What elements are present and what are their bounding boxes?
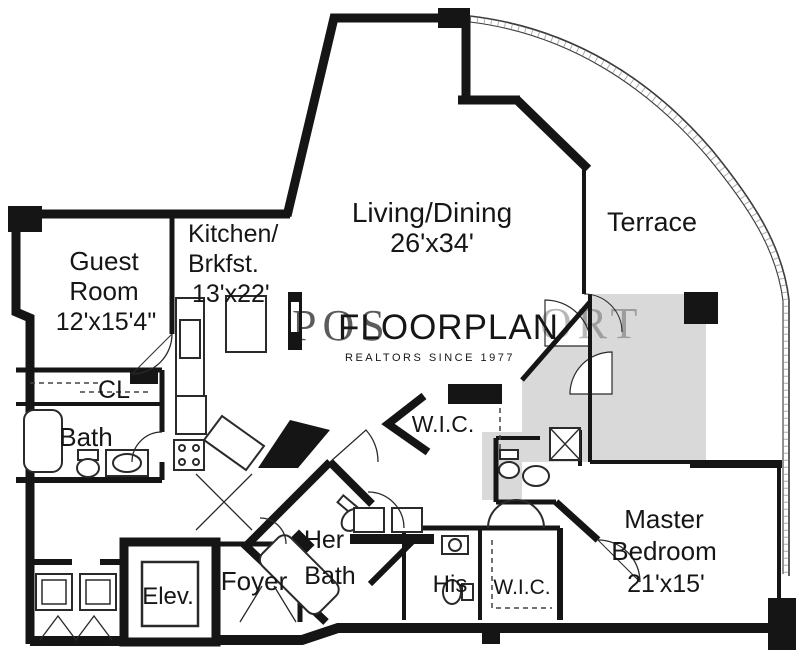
- master-label: Master: [624, 504, 704, 534]
- watermark-title: FLOORPLAN: [338, 308, 559, 347]
- living-dining-dims: 26'x34': [390, 228, 474, 258]
- master-toilet: [499, 462, 519, 478]
- guest-room-label2: Room: [69, 276, 138, 306]
- floorplan-canvas: POS ORT FLOORPLAN REALTORS SINCE 1977 Gu…: [0, 0, 800, 669]
- kitchen-label2: Brkfst.: [188, 250, 259, 278]
- kitchen-sink: [180, 320, 200, 358]
- hall-cabinet: [392, 508, 422, 532]
- kitchen-angled-counter: [204, 416, 264, 470]
- her-bath-label: Her: [304, 526, 344, 554]
- kitchen-stove: [174, 440, 204, 470]
- his-sink: [449, 539, 461, 551]
- foyer-label: Foyer: [221, 566, 288, 596]
- guest-room-dims: 12'x15'4": [56, 308, 156, 336]
- master-label2: Bedroom: [611, 536, 717, 566]
- wic-upper-label: W.I.C.: [412, 411, 475, 437]
- terrace-label: Terrace: [607, 207, 697, 237]
- master-dims: 21'x15': [627, 570, 705, 598]
- guest-bath-label: Bath: [59, 422, 113, 452]
- master-toilet-tank: [500, 450, 518, 459]
- kitchen-fridge: [176, 396, 206, 434]
- kitchen-dims: 13'x22': [192, 280, 270, 308]
- his-label: His: [433, 571, 468, 598]
- guest-room-label: Guest: [69, 246, 139, 276]
- guest-bath-tub: [24, 410, 62, 472]
- guest-sink: [113, 454, 141, 472]
- master-sink: [523, 466, 549, 486]
- her-bath-label2: Bath: [304, 562, 355, 590]
- guest-toilet: [77, 459, 99, 477]
- wic-master-label: W.I.C.: [493, 576, 550, 599]
- kitchen-label: Kitchen/: [188, 220, 278, 248]
- floorplan-page: POS ORT FLOORPLAN REALTORS SINCE 1977 Gu…: [0, 0, 800, 669]
- living-dining-label: Living/Dining: [352, 197, 512, 228]
- watermark-subtitle: REALTORS SINCE 1977: [345, 352, 515, 364]
- elevator-label: Elev.: [142, 583, 194, 610]
- cl-label: CL: [98, 376, 130, 404]
- hall-cabinet: [354, 508, 384, 532]
